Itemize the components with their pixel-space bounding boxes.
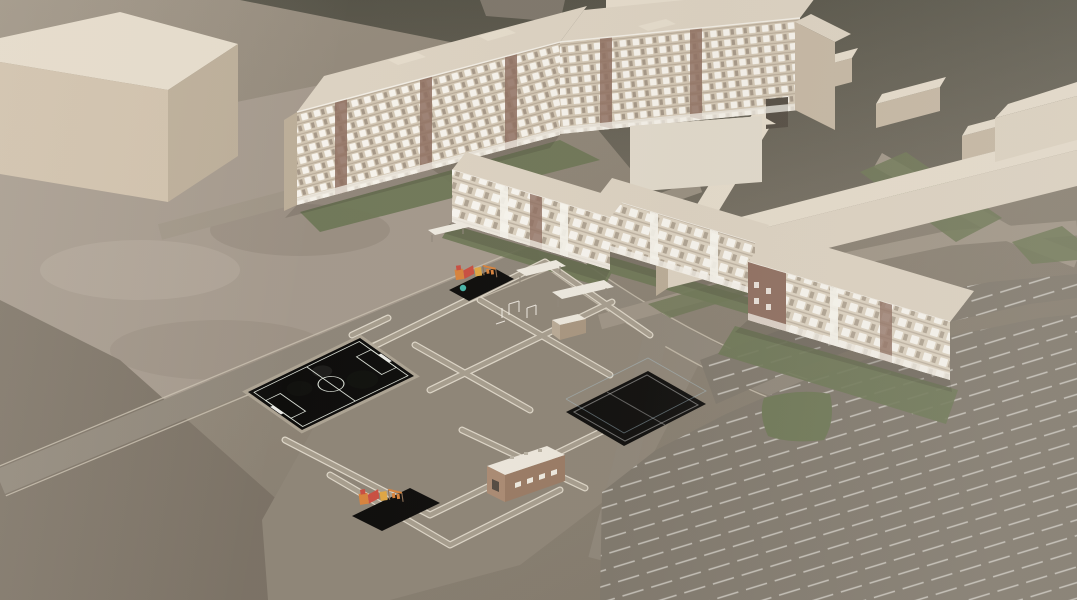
unfinished-massing-block xyxy=(0,12,238,202)
play-dome xyxy=(460,285,466,291)
render-scene xyxy=(0,0,1077,600)
white-massing-block xyxy=(630,116,762,192)
parking-lawn-island xyxy=(762,392,832,442)
masterplan-render xyxy=(0,0,1077,600)
